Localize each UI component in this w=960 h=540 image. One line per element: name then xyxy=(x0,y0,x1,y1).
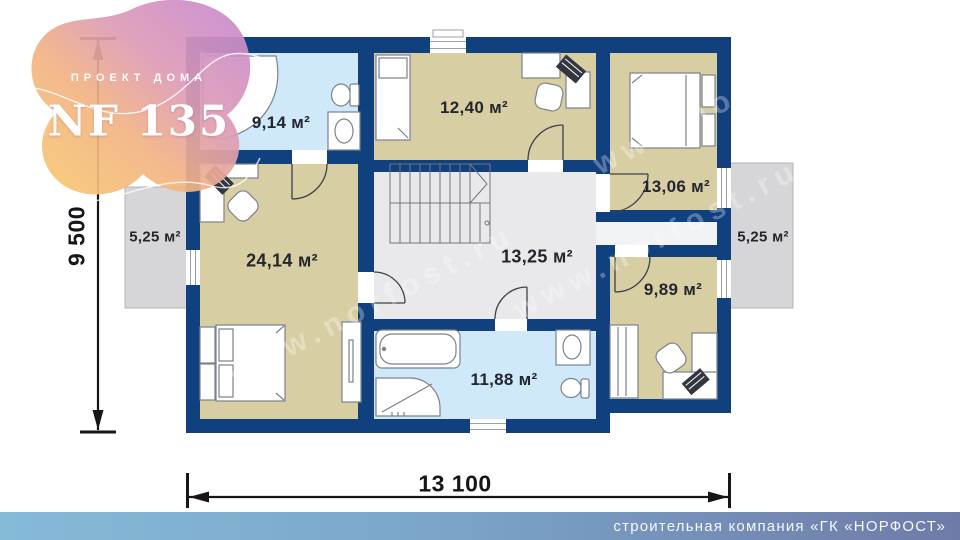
room-area-label-balcony-right: 5,25 м² xyxy=(737,229,789,246)
dimension-width-label: 13 100 xyxy=(418,471,491,498)
sink-icon xyxy=(563,335,581,359)
wardrobe-mirror-icon xyxy=(349,340,353,382)
floor-plan-page: www.norfost.ru www.norfost.ru www.norfos… xyxy=(0,0,960,540)
chair-icon xyxy=(534,82,565,113)
room-area-label-bathroom-lower: 11,88 м² xyxy=(471,370,538,390)
logo-project-label: ПРОЕКТ ДОМА xyxy=(71,72,207,84)
sink-icon xyxy=(335,119,353,143)
window-bottom-icon xyxy=(470,419,506,433)
pillow-icon xyxy=(379,58,407,78)
window-top-icon xyxy=(430,30,466,53)
wardrobe-icon xyxy=(610,325,638,398)
toilet-tank-icon xyxy=(581,379,589,398)
room-area-label-bedroom-master: 24,14 м² xyxy=(246,251,318,272)
window-left-icon xyxy=(186,250,200,285)
room-area-label-bedroom-right: 13,06 м² xyxy=(642,177,710,197)
toilet-icon xyxy=(332,84,351,106)
pillow-icon xyxy=(219,329,233,361)
bathtub-tap-icon xyxy=(382,347,386,351)
room-area-label-bedroom-upper: 12,40 м² xyxy=(440,98,508,118)
window-right-lower-icon xyxy=(717,260,731,298)
room-area-label-balcony-left: 5,25 м² xyxy=(129,229,181,246)
footer-bar: строительная компания «ГК «НОРФОСТ» xyxy=(0,512,960,540)
bathtub-icon xyxy=(376,330,460,368)
nightstand-icon xyxy=(200,364,215,400)
footer-company-name: строительная компания «ГК «НОРФОСТ» xyxy=(613,518,960,535)
logo-model-name: NF 135 xyxy=(48,97,231,146)
room-area-label-hall: 13,25 м² xyxy=(501,247,573,268)
nightstand-icon xyxy=(200,327,215,363)
room-area-label-room-lower-right: 9,89 м² xyxy=(644,280,702,300)
toilet-icon xyxy=(561,379,581,398)
toilet-tank-icon xyxy=(350,84,359,106)
desk-icon xyxy=(522,53,560,78)
